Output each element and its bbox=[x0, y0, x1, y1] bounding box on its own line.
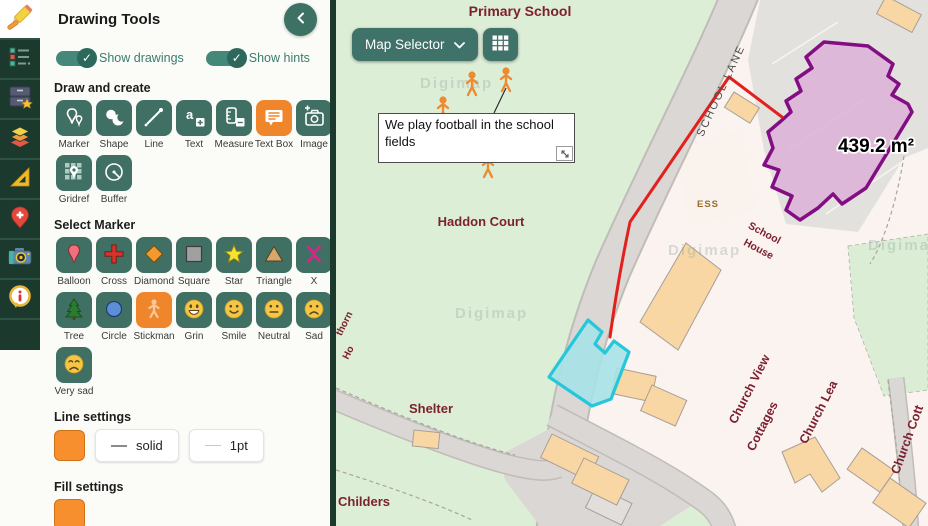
label-shelter: Shelter bbox=[409, 401, 453, 416]
marker-x-button[interactable] bbox=[296, 237, 332, 273]
map-area[interactable]: Digimap Digimap Digimap Digimap bbox=[336, 0, 928, 526]
sidebar-item-help[interactable] bbox=[0, 280, 40, 320]
svg-text:Digimap: Digimap bbox=[455, 305, 528, 322]
tool-label: Text bbox=[185, 139, 203, 150]
label-primary-school: Primary School bbox=[469, 3, 572, 19]
gridref-tool-button[interactable] bbox=[56, 155, 92, 191]
shape-tool-button[interactable] bbox=[96, 100, 132, 136]
grid-icon bbox=[492, 35, 509, 54]
marker-smile-button[interactable] bbox=[216, 292, 252, 328]
legend-icon bbox=[7, 44, 33, 75]
sidebar-item-markers[interactable] bbox=[0, 200, 40, 240]
marker-tree-button[interactable] bbox=[56, 292, 92, 328]
marker-balloon-button[interactable] bbox=[56, 237, 92, 273]
resize-handle-icon[interactable] bbox=[556, 146, 573, 161]
stickman-icon bbox=[142, 297, 166, 324]
annotation-text: We play football in the school fields bbox=[385, 117, 554, 149]
camera-icon bbox=[7, 244, 33, 275]
text-box-tool-button[interactable] bbox=[256, 100, 292, 136]
buffer-tool-button[interactable] bbox=[96, 155, 132, 191]
marker-grin-button[interactable] bbox=[176, 292, 212, 328]
map-selector-button[interactable]: Map Selector bbox=[352, 28, 478, 61]
svg-text:Digimap: Digimap bbox=[668, 242, 741, 259]
collapse-panel-button[interactable] bbox=[284, 3, 317, 36]
chevron-left-icon bbox=[294, 11, 308, 28]
marker-tool-button[interactable] bbox=[56, 100, 92, 136]
tool-label: Gridref bbox=[59, 194, 90, 205]
marker-diamond-button[interactable] bbox=[136, 237, 172, 273]
star-icon bbox=[222, 242, 246, 269]
map-canvas[interactable]: Digimap Digimap Digimap Digimap bbox=[336, 0, 928, 526]
gridref-icon bbox=[62, 160, 86, 187]
marker-label: Cross bbox=[101, 276, 127, 287]
section-fill-settings: Fill settings bbox=[54, 480, 330, 494]
marker-label: Diamond bbox=[134, 276, 174, 287]
toggle-label: Show drawings bbox=[99, 51, 184, 65]
line-settings-row: solid 1pt bbox=[54, 429, 330, 462]
cross-icon bbox=[102, 242, 126, 269]
info-icon bbox=[7, 284, 33, 315]
sidebar-item-drawing-tools[interactable] bbox=[0, 0, 40, 40]
section-line-settings: Line settings bbox=[54, 410, 330, 424]
measured-area-label: 439.2 m² bbox=[838, 136, 914, 157]
marker-label: Triangle bbox=[256, 276, 292, 287]
sidebar-item-measure-tools[interactable] bbox=[0, 160, 40, 200]
svg-text:a: a bbox=[186, 107, 194, 122]
sidebar-item-saved-maps[interactable] bbox=[0, 80, 40, 120]
panel-header: Drawing Tools bbox=[54, 0, 330, 38]
tool-label: Shape bbox=[100, 139, 129, 150]
line-style-sample-icon bbox=[111, 445, 127, 447]
image-tool-button[interactable] bbox=[296, 100, 332, 136]
sad-face-icon bbox=[302, 297, 326, 324]
line-style-button[interactable]: solid bbox=[95, 429, 179, 462]
tool-label: Measure bbox=[215, 139, 254, 150]
marker-label: Circle bbox=[101, 331, 127, 342]
marker-label: Balloon bbox=[57, 276, 90, 287]
smile-face-icon bbox=[222, 297, 246, 324]
image-camera-icon bbox=[302, 105, 326, 132]
shape-icon bbox=[102, 105, 126, 132]
draw-tool-grid: Marker Shape Line a bbox=[54, 100, 336, 205]
icon-rail bbox=[0, 0, 40, 350]
tool-label: Text Box bbox=[255, 139, 293, 150]
show-drawings-toggle[interactable]: ✓ Show drawings bbox=[56, 51, 184, 66]
sidebar-item-photos[interactable] bbox=[0, 240, 40, 280]
section-select-marker: Select Marker bbox=[54, 218, 330, 232]
balloon-icon bbox=[62, 242, 86, 269]
label-haddon-court: Haddon Court bbox=[438, 214, 525, 229]
tool-label: Buffer bbox=[101, 194, 128, 205]
marker-circle-button[interactable] bbox=[96, 292, 132, 328]
grin-face-icon bbox=[182, 297, 206, 324]
marker-square-button[interactable] bbox=[176, 237, 212, 273]
diamond-icon bbox=[142, 242, 166, 269]
very-sad-face-icon bbox=[62, 352, 86, 379]
measure-tool-button[interactable] bbox=[216, 100, 252, 136]
map-selector-label: Map Selector bbox=[365, 37, 445, 52]
sidebar-item-legend[interactable] bbox=[0, 40, 40, 80]
tree-icon bbox=[62, 297, 86, 324]
circle-icon bbox=[102, 297, 126, 324]
marker-label: Grin bbox=[185, 331, 204, 342]
line-style-value: solid bbox=[136, 438, 163, 453]
marker-label: Neutral bbox=[258, 331, 290, 342]
buffer-icon bbox=[102, 160, 126, 187]
drawing-tools-panel: Drawing Tools ✓ Show drawings ✓ Show hin… bbox=[40, 0, 330, 526]
saved-maps-icon bbox=[7, 84, 33, 115]
check-icon: ✓ bbox=[77, 48, 97, 68]
layers-icon bbox=[7, 124, 33, 155]
marker-label: X bbox=[311, 276, 318, 287]
map-pin-icon bbox=[7, 204, 33, 235]
x-icon bbox=[302, 242, 326, 269]
marker-icon bbox=[62, 105, 86, 132]
chevron-down-icon bbox=[454, 37, 465, 52]
marker-label: Sad bbox=[305, 331, 323, 342]
text-box-icon bbox=[262, 105, 286, 132]
svg-text:Digimap: Digimap bbox=[868, 237, 928, 254]
triangle-icon bbox=[262, 242, 286, 269]
set-square-icon bbox=[7, 164, 33, 195]
digimap-drawing-app: Drawing Tools ✓ Show drawings ✓ Show hin… bbox=[0, 0, 928, 526]
square-icon bbox=[182, 242, 206, 269]
marker-stickman-button[interactable] bbox=[136, 292, 172, 328]
annotation-text-box[interactable]: We play football in the school fields bbox=[378, 113, 575, 163]
line-icon bbox=[142, 105, 166, 132]
text-tool-button[interactable]: a bbox=[176, 100, 212, 136]
marker-label: Very sad bbox=[55, 386, 94, 397]
toggle-pill: ✓ bbox=[56, 51, 94, 66]
marker-label: Stickman bbox=[133, 331, 174, 342]
line-width-button[interactable]: 1pt bbox=[189, 429, 264, 462]
marker-label: Star bbox=[225, 276, 243, 287]
toggle-row: ✓ Show drawings ✓ Show hints bbox=[56, 48, 330, 68]
marker-neutral-button[interactable] bbox=[256, 292, 292, 328]
fill-color-swatch[interactable] bbox=[54, 499, 85, 526]
marker-label: Smile bbox=[221, 331, 246, 342]
marker-triangle-button[interactable] bbox=[256, 237, 292, 273]
sidebar-item-layers[interactable] bbox=[0, 120, 40, 160]
marker-label: Tree bbox=[64, 331, 84, 342]
text-icon: a bbox=[182, 105, 206, 132]
toggle-label: Show hints bbox=[249, 51, 310, 65]
neutral-face-icon bbox=[262, 297, 286, 324]
grid-overlay-button[interactable] bbox=[483, 28, 518, 61]
marker-cross-button[interactable] bbox=[96, 237, 132, 273]
line-tool-button[interactable] bbox=[136, 100, 172, 136]
marker-very-sad-button[interactable] bbox=[56, 347, 92, 383]
marker-sad-button[interactable] bbox=[296, 292, 332, 328]
tool-label: Marker bbox=[58, 139, 89, 150]
marker-label: Square bbox=[178, 276, 210, 287]
line-width-sample-icon bbox=[205, 445, 221, 446]
line-width-value: 1pt bbox=[230, 438, 248, 453]
label-childers: Childers bbox=[338, 494, 390, 509]
marker-star-button[interactable] bbox=[216, 237, 252, 273]
measure-icon bbox=[222, 105, 246, 132]
tool-label: Image bbox=[300, 139, 328, 150]
toggle-pill: ✓ bbox=[206, 51, 244, 66]
fill-settings-row bbox=[54, 499, 330, 526]
svg-text:Digimap: Digimap bbox=[420, 75, 493, 92]
show-hints-toggle[interactable]: ✓ Show hints bbox=[206, 51, 310, 66]
pencil-icon bbox=[6, 3, 34, 36]
check-icon: ✓ bbox=[227, 48, 247, 68]
label-ess: ESS bbox=[697, 199, 719, 210]
page-title: Drawing Tools bbox=[58, 11, 160, 28]
marker-grid: Balloon Cross Diamond Square bbox=[54, 237, 336, 397]
section-draw-and-create: Draw and create bbox=[54, 81, 330, 95]
line-color-swatch[interactable] bbox=[54, 430, 85, 461]
tool-label: Line bbox=[145, 139, 164, 150]
